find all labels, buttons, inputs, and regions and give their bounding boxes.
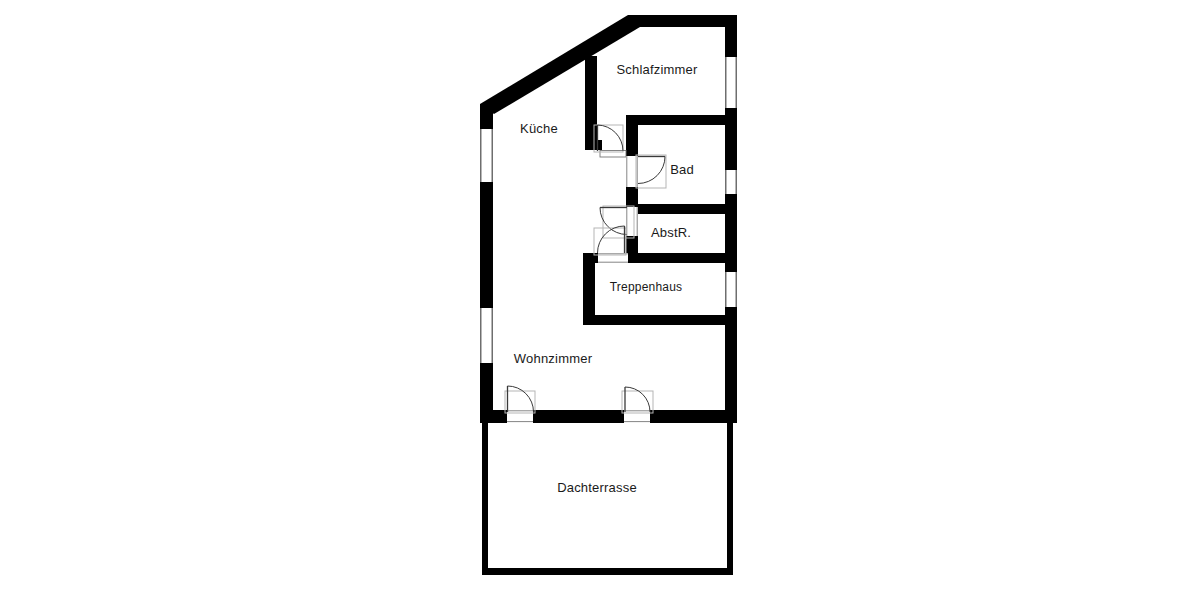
- wall-right: [725, 15, 737, 57]
- wall-bad-left: [626, 115, 638, 156]
- wall-treppenhaus-left: [583, 253, 595, 325]
- wall-bottom: [480, 410, 507, 423]
- room-label-kueche: Küche: [520, 121, 558, 136]
- wall-treppenhaus-bottom: [583, 315, 725, 325]
- window-bad: [725, 170, 737, 194]
- wall-right: [725, 307, 737, 423]
- room-label-bad: Bad: [670, 162, 694, 177]
- terrace-wall-right: [727, 423, 733, 575]
- wall-bad-abst-divider: [626, 204, 725, 214]
- window-treppenhaus: [725, 272, 737, 307]
- door-opening: [507, 410, 533, 423]
- wall-kueche-divider: [585, 56, 597, 150]
- room-label-dachterrasse: Dachterrasse: [557, 480, 637, 495]
- wall-bottom: [650, 410, 737, 423]
- door-frame: [505, 391, 535, 413]
- door-terrace-left: [505, 386, 535, 423]
- wall-left: [480, 182, 493, 308]
- wall-top: [628, 15, 737, 27]
- wall-treppenhaus-top: [628, 253, 725, 263]
- door-entry: [594, 226, 628, 263]
- terrace-wall-bottom: [482, 568, 733, 575]
- room-label-abstellraum: AbstR.: [651, 225, 691, 240]
- floor-plan-canvas: Schlafzimmer Küche Bad AbstR. Treppenhau…: [0, 0, 1200, 600]
- window-kueche: [480, 129, 493, 182]
- room-label-treppenhaus: Treppenhaus: [610, 280, 682, 294]
- door-opening: [626, 207, 638, 236]
- door-frame: [594, 228, 626, 255]
- window-wohnzimmer: [480, 308, 493, 363]
- wall-left: [480, 104, 493, 129]
- wall-schlafzimmer-bad-divider: [626, 115, 725, 125]
- door-bad: [626, 155, 666, 188]
- door-swing-arc: [600, 208, 627, 235]
- terrace-wall-left: [482, 423, 488, 575]
- door-swing-arc: [638, 157, 665, 184]
- door-swing-arc: [598, 226, 625, 253]
- door-opening: [624, 410, 650, 423]
- wall-bottom: [533, 410, 624, 423]
- floor-plan-drawing: [0, 0, 1200, 600]
- door-swing-arc: [508, 386, 534, 412]
- room-label-schlafzimmer: Schlafzimmer: [616, 62, 697, 77]
- room-label-wohnzimmer: Wohnzimmer: [514, 351, 592, 366]
- window-schlafzimmer: [725, 57, 737, 108]
- door-threshold: [600, 151, 626, 158]
- wall-right: [725, 194, 737, 272]
- terrace-walls: [482, 423, 733, 575]
- wall-right: [725, 108, 737, 170]
- door-terrace-right: [622, 387, 653, 423]
